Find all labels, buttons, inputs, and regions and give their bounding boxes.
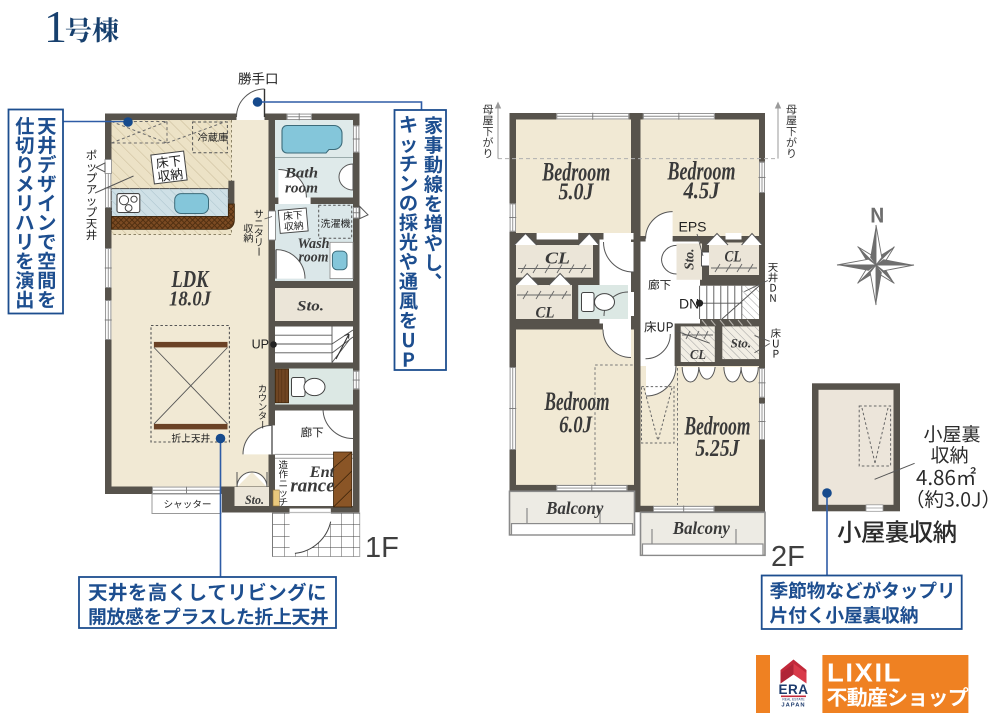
- svg-text:5.25J: 5.25J: [695, 436, 740, 462]
- svg-text:1F: 1F: [365, 532, 399, 564]
- svg-text:UP: UP: [252, 338, 269, 352]
- svg-text:JAPAN: JAPAN: [781, 703, 805, 709]
- svg-text:5.0J: 5.0J: [559, 180, 595, 206]
- svg-text:Sto.: Sto.: [731, 336, 752, 351]
- svg-text:Balcony: Balcony: [672, 518, 730, 538]
- svg-text:Balcony: Balcony: [545, 498, 603, 518]
- svg-text:Sto.: Sto.: [245, 492, 264, 507]
- svg-text:room: room: [285, 181, 318, 197]
- svg-text:2F: 2F: [771, 541, 805, 573]
- svg-text:rance: rance: [290, 476, 335, 497]
- svg-text:Bath: Bath: [284, 166, 318, 182]
- svg-text:REAL ESTATE: REAL ESTATE: [782, 698, 805, 702]
- svg-text:18.0J: 18.0J: [169, 287, 212, 311]
- svg-text:CL: CL: [536, 305, 555, 322]
- svg-text:4.5J: 4.5J: [683, 179, 721, 205]
- svg-text:CL: CL: [725, 249, 742, 266]
- svg-text:Sto.: Sto.: [681, 249, 696, 270]
- svg-text:DN: DN: [679, 296, 699, 312]
- svg-text:6.0J: 6.0J: [559, 413, 593, 439]
- svg-text:EPS: EPS: [679, 219, 707, 235]
- svg-text:LIXIL: LIXIL: [827, 658, 902, 688]
- svg-text:1: 1: [44, 1, 67, 52]
- svg-text:room: room: [299, 250, 329, 266]
- svg-text:CL: CL: [545, 249, 570, 268]
- svg-text:Sto.: Sto.: [297, 299, 324, 315]
- svg-text:CL: CL: [690, 348, 706, 363]
- svg-text:ERA: ERA: [778, 682, 808, 697]
